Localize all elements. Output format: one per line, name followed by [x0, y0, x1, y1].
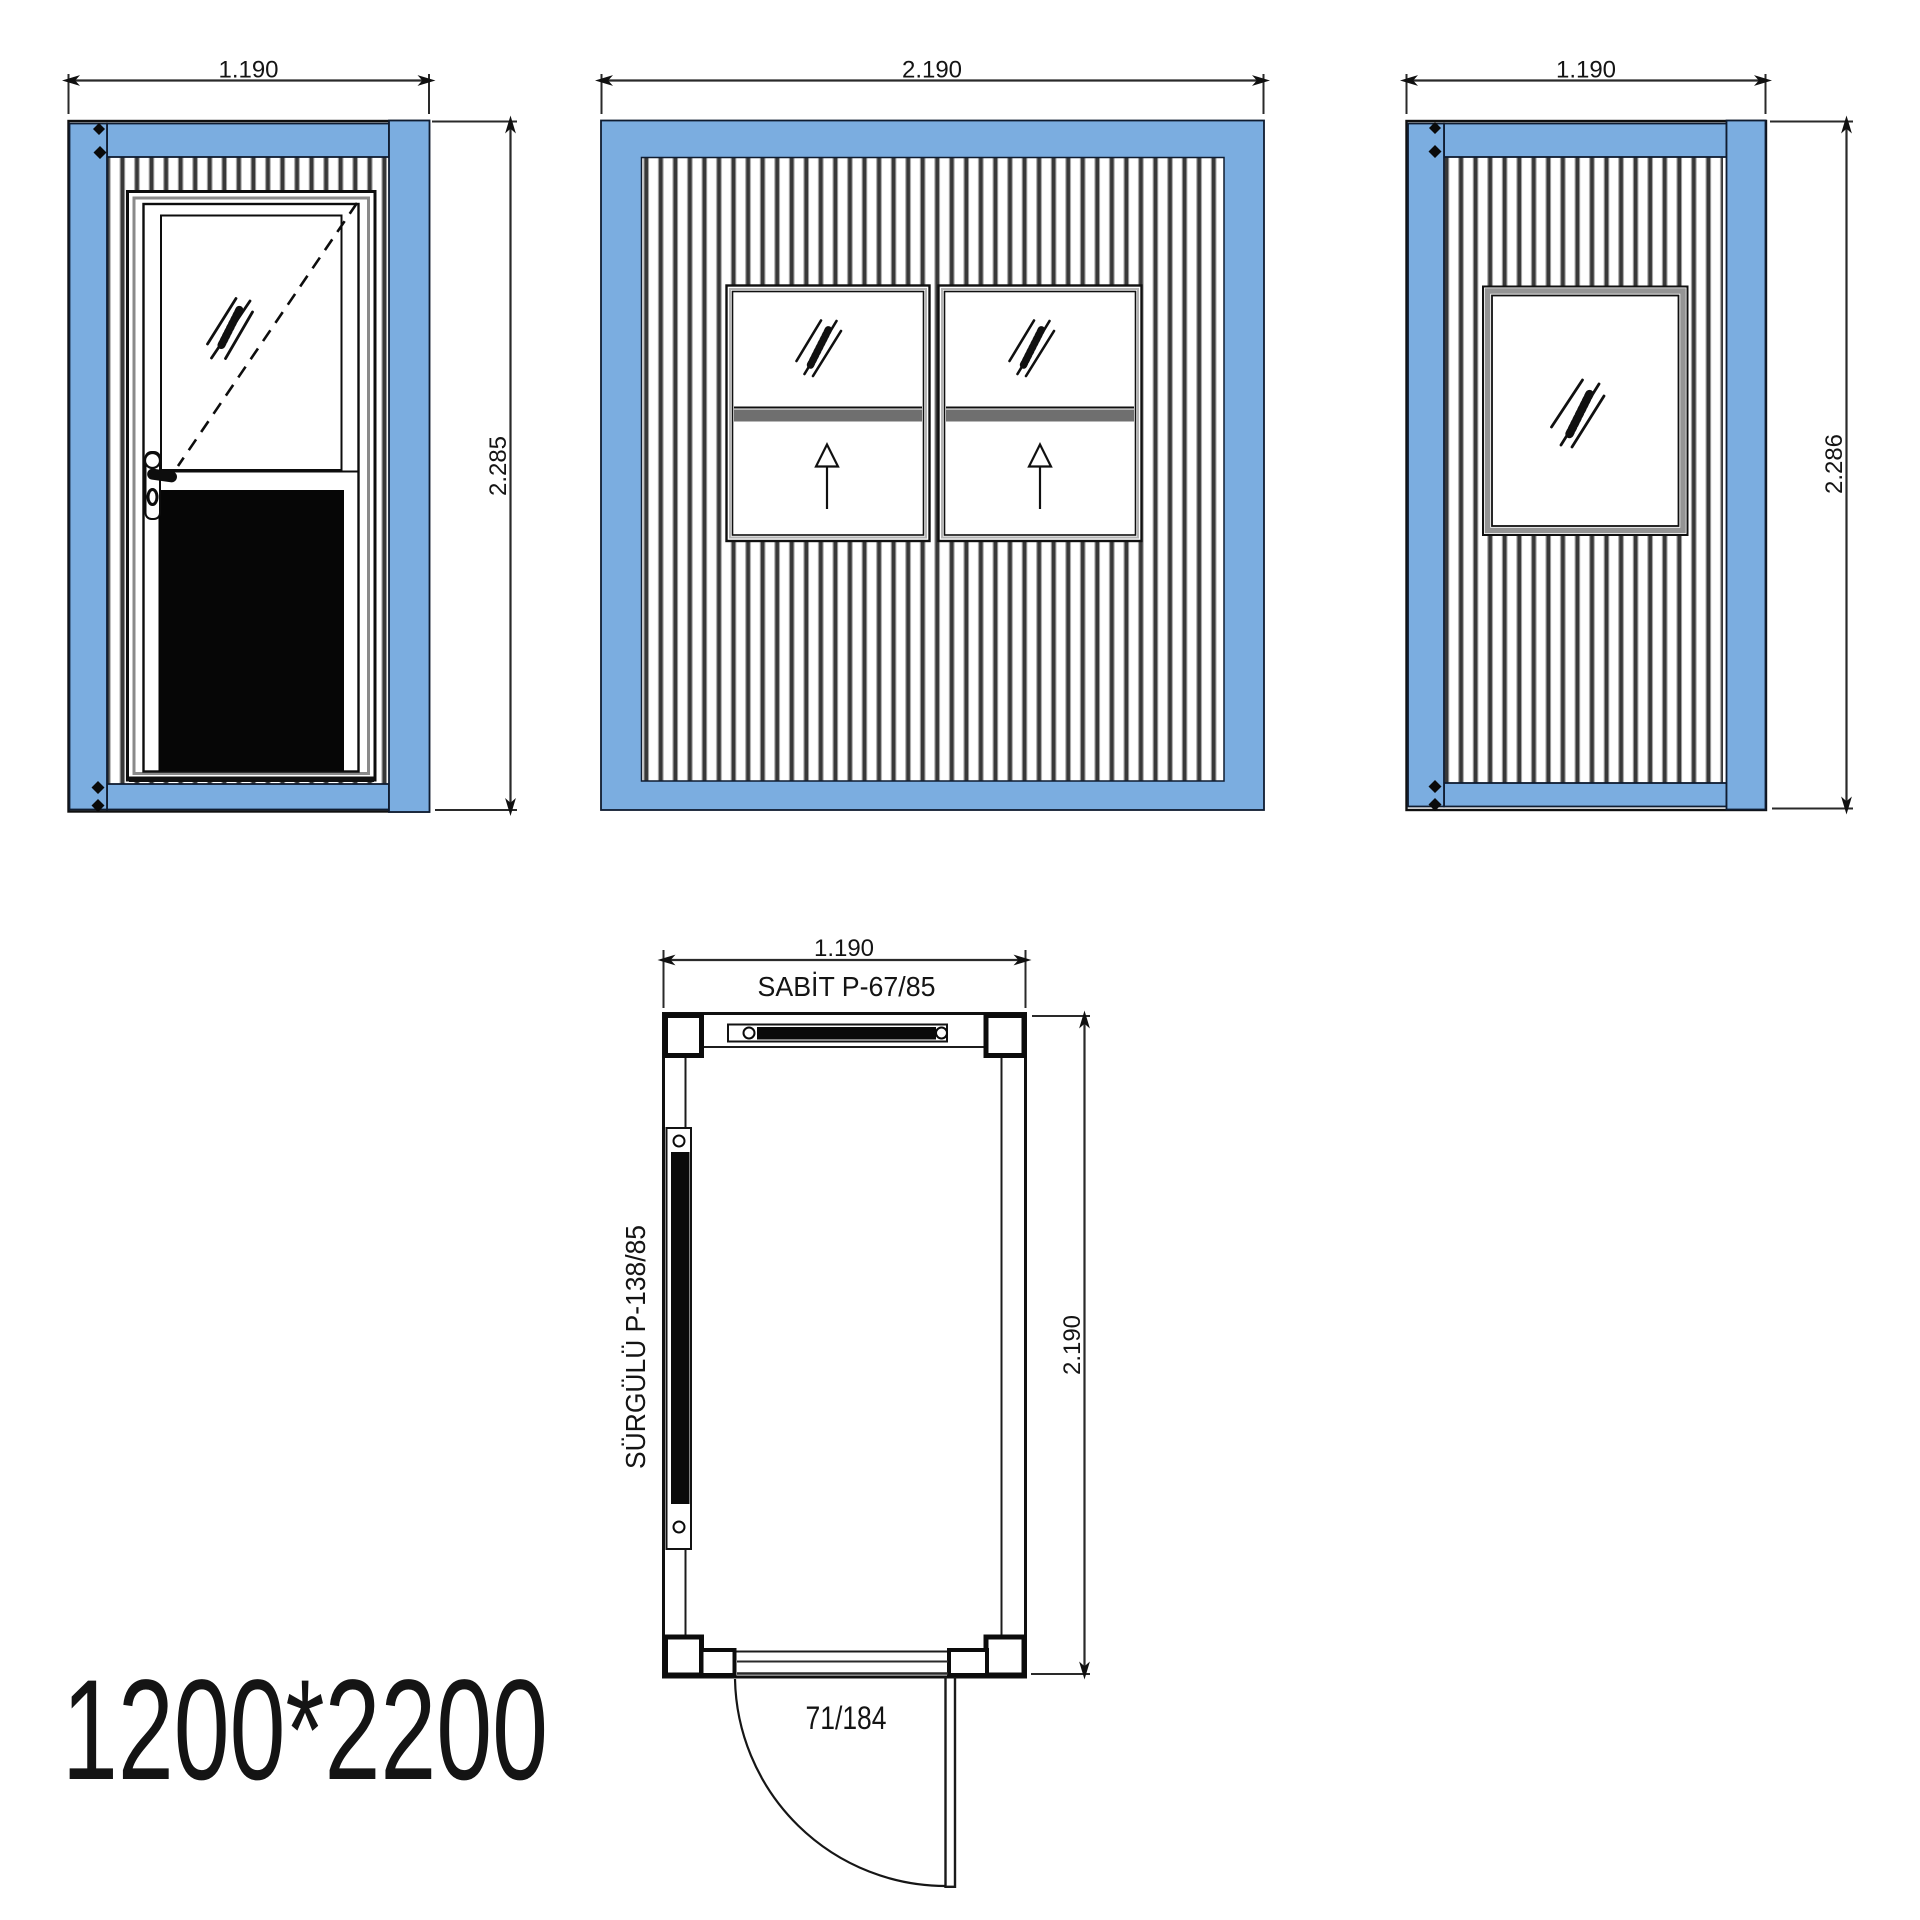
svg-text:2.286: 2.286 — [1821, 434, 1848, 494]
svg-text:2.190: 2.190 — [902, 57, 962, 84]
svg-text:2.190: 2.190 — [1059, 1315, 1086, 1375]
svg-text:2.285: 2.285 — [485, 436, 512, 496]
svg-text:1200*2200: 1200*2200 — [62, 1651, 548, 1810]
svg-text:1.190: 1.190 — [1556, 57, 1616, 84]
svg-text:1.190: 1.190 — [814, 935, 874, 962]
svg-text:SÜRGÜLÜ P-138/85: SÜRGÜLÜ P-138/85 — [620, 1225, 651, 1469]
svg-text:71/184: 71/184 — [806, 1700, 887, 1736]
svg-text:1.190: 1.190 — [218, 57, 278, 84]
svg-text:SABİT P-67/85: SABİT P-67/85 — [758, 971, 936, 1002]
